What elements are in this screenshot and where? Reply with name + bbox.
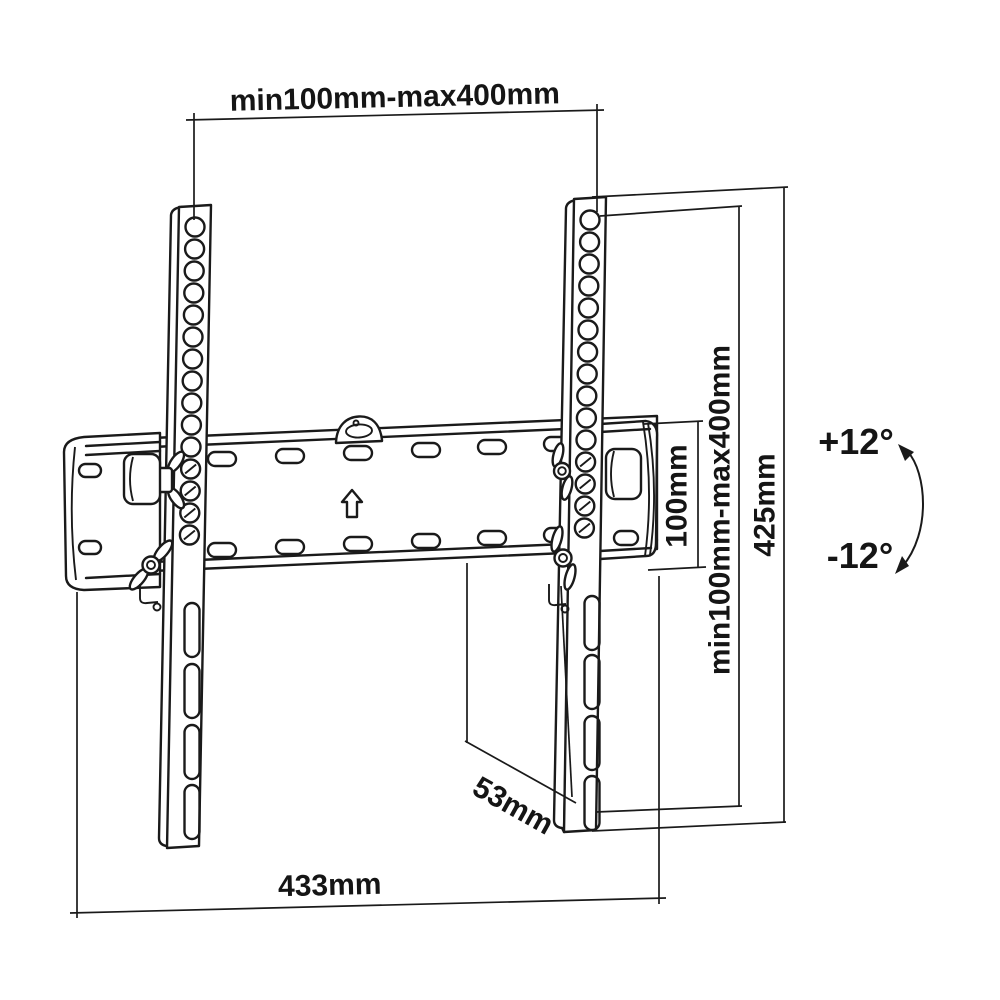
vesa-vertical-label: min100mm-max400mm (704, 345, 737, 675)
tilt-arc-arrow (895, 444, 923, 574)
tilt-up-label: +12° (818, 421, 893, 462)
tilt-annotation: +12° -12° (818, 421, 923, 576)
mount-depth-label: 53mm (467, 770, 559, 841)
bracket-height-label: 425mm (749, 453, 782, 556)
technical-drawing-canvas: min100mm-max400mm 433mm 100mm min100mm-m… (0, 0, 1000, 1000)
tilt-down-label: -12° (827, 535, 893, 576)
tv-wall-mount-diagram: min100mm-max400mm 433mm 100mm min100mm-m… (0, 0, 1000, 1000)
right-vesa-rail (554, 197, 606, 832)
left-vesa-rail (159, 205, 211, 848)
plate-height-label: 100mm (661, 444, 694, 547)
right-tilt-knob (606, 449, 641, 499)
bracket-width-label: 433mm (278, 868, 382, 904)
bubble-level (336, 416, 382, 443)
dim-vesa-horizontal: min100mm-max400mm (186, 77, 604, 220)
